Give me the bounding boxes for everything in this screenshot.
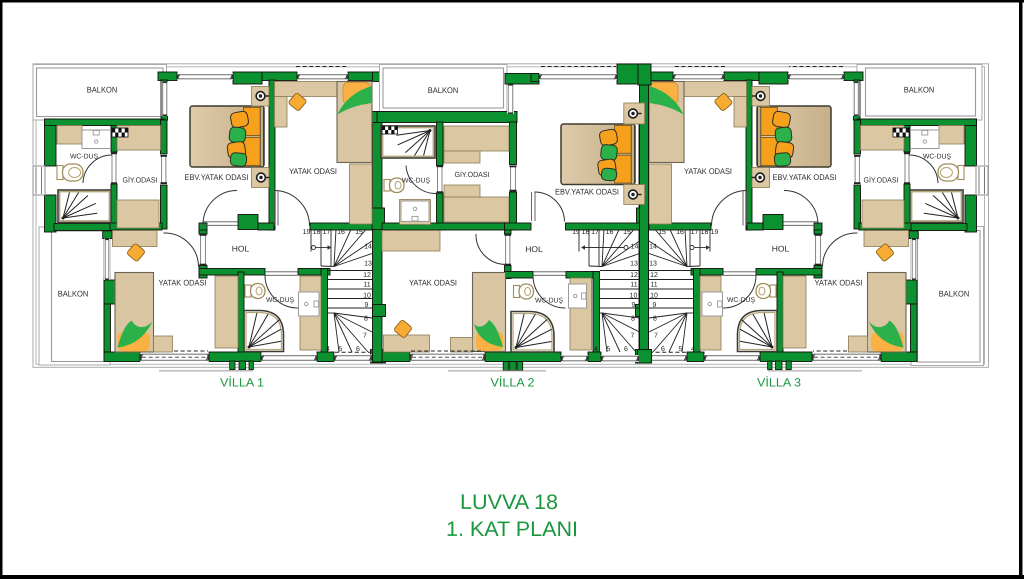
svg-text:11: 11 (630, 281, 637, 288)
svg-text:16: 16 (676, 229, 684, 236)
svg-text:12: 12 (650, 272, 658, 279)
svg-text:EBV.YATAK ODASI: EBV.YATAK ODASI (184, 173, 248, 182)
svg-text:4: 4 (594, 346, 598, 353)
svg-text:14: 14 (649, 243, 657, 250)
svg-text:13: 13 (364, 260, 372, 267)
svg-text:15: 15 (623, 229, 631, 236)
svg-text:5: 5 (339, 346, 343, 353)
svg-text:6: 6 (624, 346, 628, 353)
svg-text:11: 11 (363, 281, 370, 288)
svg-text:GİY.ODASI: GİY.ODASI (122, 175, 157, 184)
svg-text:EBV.YATAK ODASI: EBV.YATAK ODASI (772, 173, 836, 182)
svg-text:WC-DUŞ: WC-DUŞ (402, 177, 430, 184)
svg-text:4: 4 (691, 346, 695, 353)
svg-text:GİY.ODASI: GİY.ODASI (454, 170, 489, 179)
svg-text:9: 9 (632, 302, 636, 309)
svg-text:HOL: HOL (525, 245, 543, 254)
svg-text:WC-DUŞ: WC-DUŞ (535, 297, 563, 304)
svg-text:14: 14 (364, 243, 372, 250)
svg-text:YATAK ODASI: YATAK ODASI (409, 278, 457, 287)
svg-text:EBV.YATAK ODASI: EBV.YATAK ODASI (555, 187, 619, 196)
svg-text:10: 10 (363, 292, 371, 299)
svg-text:5: 5 (679, 346, 683, 353)
svg-text:6: 6 (356, 346, 360, 353)
svg-text:10: 10 (630, 292, 638, 299)
svg-text:13: 13 (649, 260, 657, 267)
svg-text:8: 8 (653, 315, 657, 322)
svg-text:BALKON: BALKON (58, 289, 89, 298)
svg-text:13: 13 (630, 260, 638, 267)
svg-text:VİLLA 3: VİLLA 3 (757, 375, 801, 389)
svg-text:BALKON: BALKON (904, 85, 935, 94)
svg-text:19: 19 (711, 229, 719, 236)
svg-text:VİLLA 1: VİLLA 1 (220, 375, 264, 389)
svg-text:17: 17 (591, 229, 599, 236)
svg-text:BALKON: BALKON (939, 289, 970, 298)
svg-text:7: 7 (363, 332, 367, 339)
svg-text:18: 18 (701, 229, 709, 236)
svg-text:15: 15 (658, 229, 666, 236)
svg-text:12: 12 (363, 272, 371, 279)
svg-text:YATAK ODASI: YATAK ODASI (158, 278, 206, 287)
svg-text:YATAK ODASI: YATAK ODASI (814, 278, 862, 287)
svg-text:16: 16 (337, 229, 345, 236)
svg-text:6: 6 (661, 346, 665, 353)
svg-text:4: 4 (326, 346, 330, 353)
svg-text:1. KAT PLANI: 1. KAT PLANI (446, 518, 578, 541)
svg-text:7: 7 (631, 332, 635, 339)
svg-text:9: 9 (653, 302, 657, 309)
svg-text:WC-DUŞ: WC-DUŞ (266, 297, 294, 304)
svg-text:8: 8 (364, 315, 368, 322)
svg-text:19: 19 (303, 229, 311, 236)
svg-text:WC-DUŞ: WC-DUŞ (923, 153, 951, 160)
svg-text:WC-DUŞ: WC-DUŞ (70, 153, 98, 160)
svg-text:11: 11 (650, 281, 657, 288)
svg-text:16: 16 (606, 229, 614, 236)
svg-text:HOL: HOL (232, 244, 250, 253)
svg-text:18: 18 (313, 229, 321, 236)
svg-text:12: 12 (630, 272, 638, 279)
svg-text:17: 17 (323, 229, 331, 236)
svg-text:18: 18 (582, 229, 590, 236)
svg-text:VİLLA 2: VİLLA 2 (490, 375, 534, 389)
svg-text:YATAK ODASI: YATAK ODASI (289, 167, 337, 176)
svg-text:YATAK ODASI: YATAK ODASI (684, 167, 732, 176)
svg-text:BALKON: BALKON (428, 86, 459, 95)
svg-text:5: 5 (607, 346, 611, 353)
svg-text:10: 10 (650, 292, 658, 299)
svg-text:WC-DUŞ: WC-DUŞ (727, 297, 755, 304)
svg-text:BALKON: BALKON (87, 85, 118, 94)
svg-text:17: 17 (691, 229, 699, 236)
svg-text:15: 15 (355, 229, 363, 236)
svg-text:LUVVA 18: LUVVA 18 (460, 491, 558, 514)
svg-text:GİY.ODASI: GİY.ODASI (863, 175, 898, 184)
svg-text:HOL: HOL (772, 244, 790, 253)
svg-text:7: 7 (654, 332, 658, 339)
svg-text:14: 14 (631, 243, 639, 250)
svg-text:9: 9 (365, 302, 369, 309)
svg-text:8: 8 (631, 315, 635, 322)
svg-text:19: 19 (572, 229, 580, 236)
